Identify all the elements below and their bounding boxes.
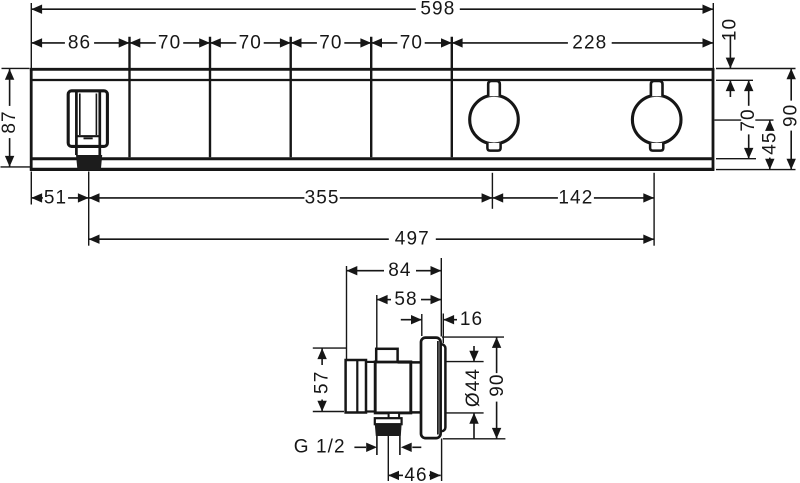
svg-text:87: 87 — [0, 110, 20, 133]
svg-text:598: 598 — [420, 0, 455, 20]
svg-text:57: 57 — [312, 371, 333, 394]
svg-text:Ø44: Ø44 — [463, 368, 484, 407]
svg-text:70: 70 — [158, 32, 181, 53]
svg-text:10: 10 — [720, 18, 741, 41]
svg-text:58: 58 — [394, 289, 417, 310]
svg-text:142: 142 — [558, 187, 593, 208]
svg-text:46: 46 — [404, 465, 427, 483]
svg-text:70: 70 — [319, 32, 342, 53]
svg-text:70: 70 — [400, 32, 423, 53]
svg-text:70: 70 — [239, 32, 262, 53]
svg-text:45: 45 — [759, 131, 780, 154]
svg-text:86: 86 — [68, 32, 91, 53]
svg-text:90: 90 — [487, 373, 508, 396]
svg-text:497: 497 — [395, 229, 430, 250]
svg-text:51: 51 — [44, 187, 67, 208]
svg-text:228: 228 — [572, 32, 607, 53]
svg-text:G 1/2: G 1/2 — [294, 437, 346, 458]
svg-text:355: 355 — [305, 187, 340, 208]
svg-text:84: 84 — [388, 260, 411, 281]
svg-text:16: 16 — [460, 309, 483, 330]
svg-text:90: 90 — [781, 104, 800, 127]
